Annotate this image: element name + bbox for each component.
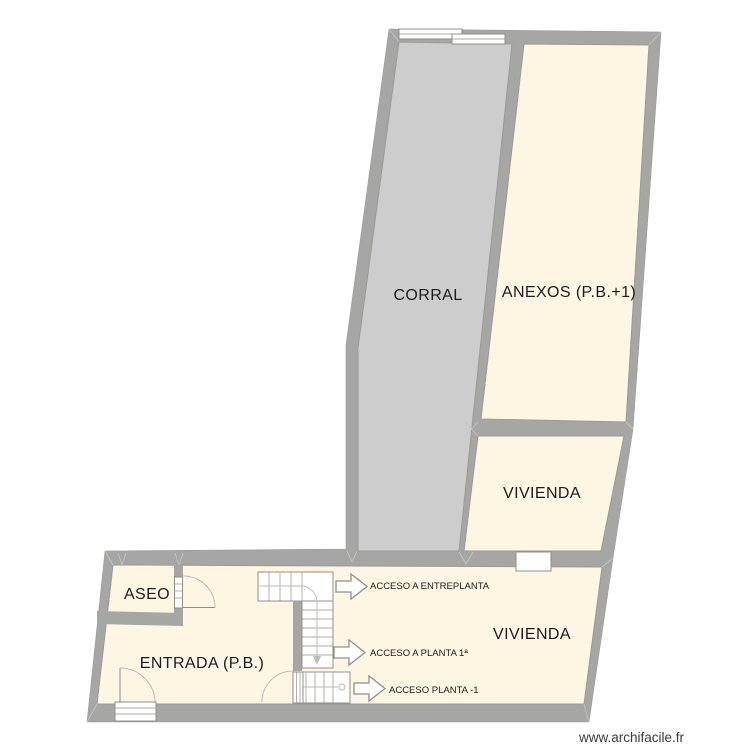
annotation-acceso-entreplanta: ACCESO A ENTREPLANTA xyxy=(370,581,490,592)
annotation-acceso-planta1: ACCESO A PLANTA 1ª xyxy=(370,648,468,659)
room-label-aseo: ASEO xyxy=(124,586,170,603)
window-entrada-bottom xyxy=(115,702,156,721)
room-label-vivienda-baja: VIVIENDA xyxy=(493,626,571,643)
watermark-archifacile: www.archifacile.fr xyxy=(578,730,685,745)
room-label-corral: CORRAL xyxy=(393,287,462,304)
floor-plan-svg: CORRAL ANEXOS (P.B.+1) VIVIENDA ASEO ENT… xyxy=(0,0,750,750)
room-label-entrada: ENTRADA (P.B.) xyxy=(140,655,264,672)
stair-wall xyxy=(293,601,302,671)
room-label-vivienda-media: VIVIENDA xyxy=(503,485,581,502)
room-label-anexos: ANEXOS (P.B.+1) xyxy=(502,284,636,301)
annotation-acceso-planta-m1: ACCESO PLANTA -1 xyxy=(389,685,479,696)
stair-door-jamb xyxy=(293,672,303,703)
floor-plan-canvas: CORRAL ANEXOS (P.B.+1) VIVIENDA ASEO ENT… xyxy=(0,0,750,750)
window-vivienda-media xyxy=(516,552,551,571)
aseo-bottom-wall xyxy=(97,611,183,626)
